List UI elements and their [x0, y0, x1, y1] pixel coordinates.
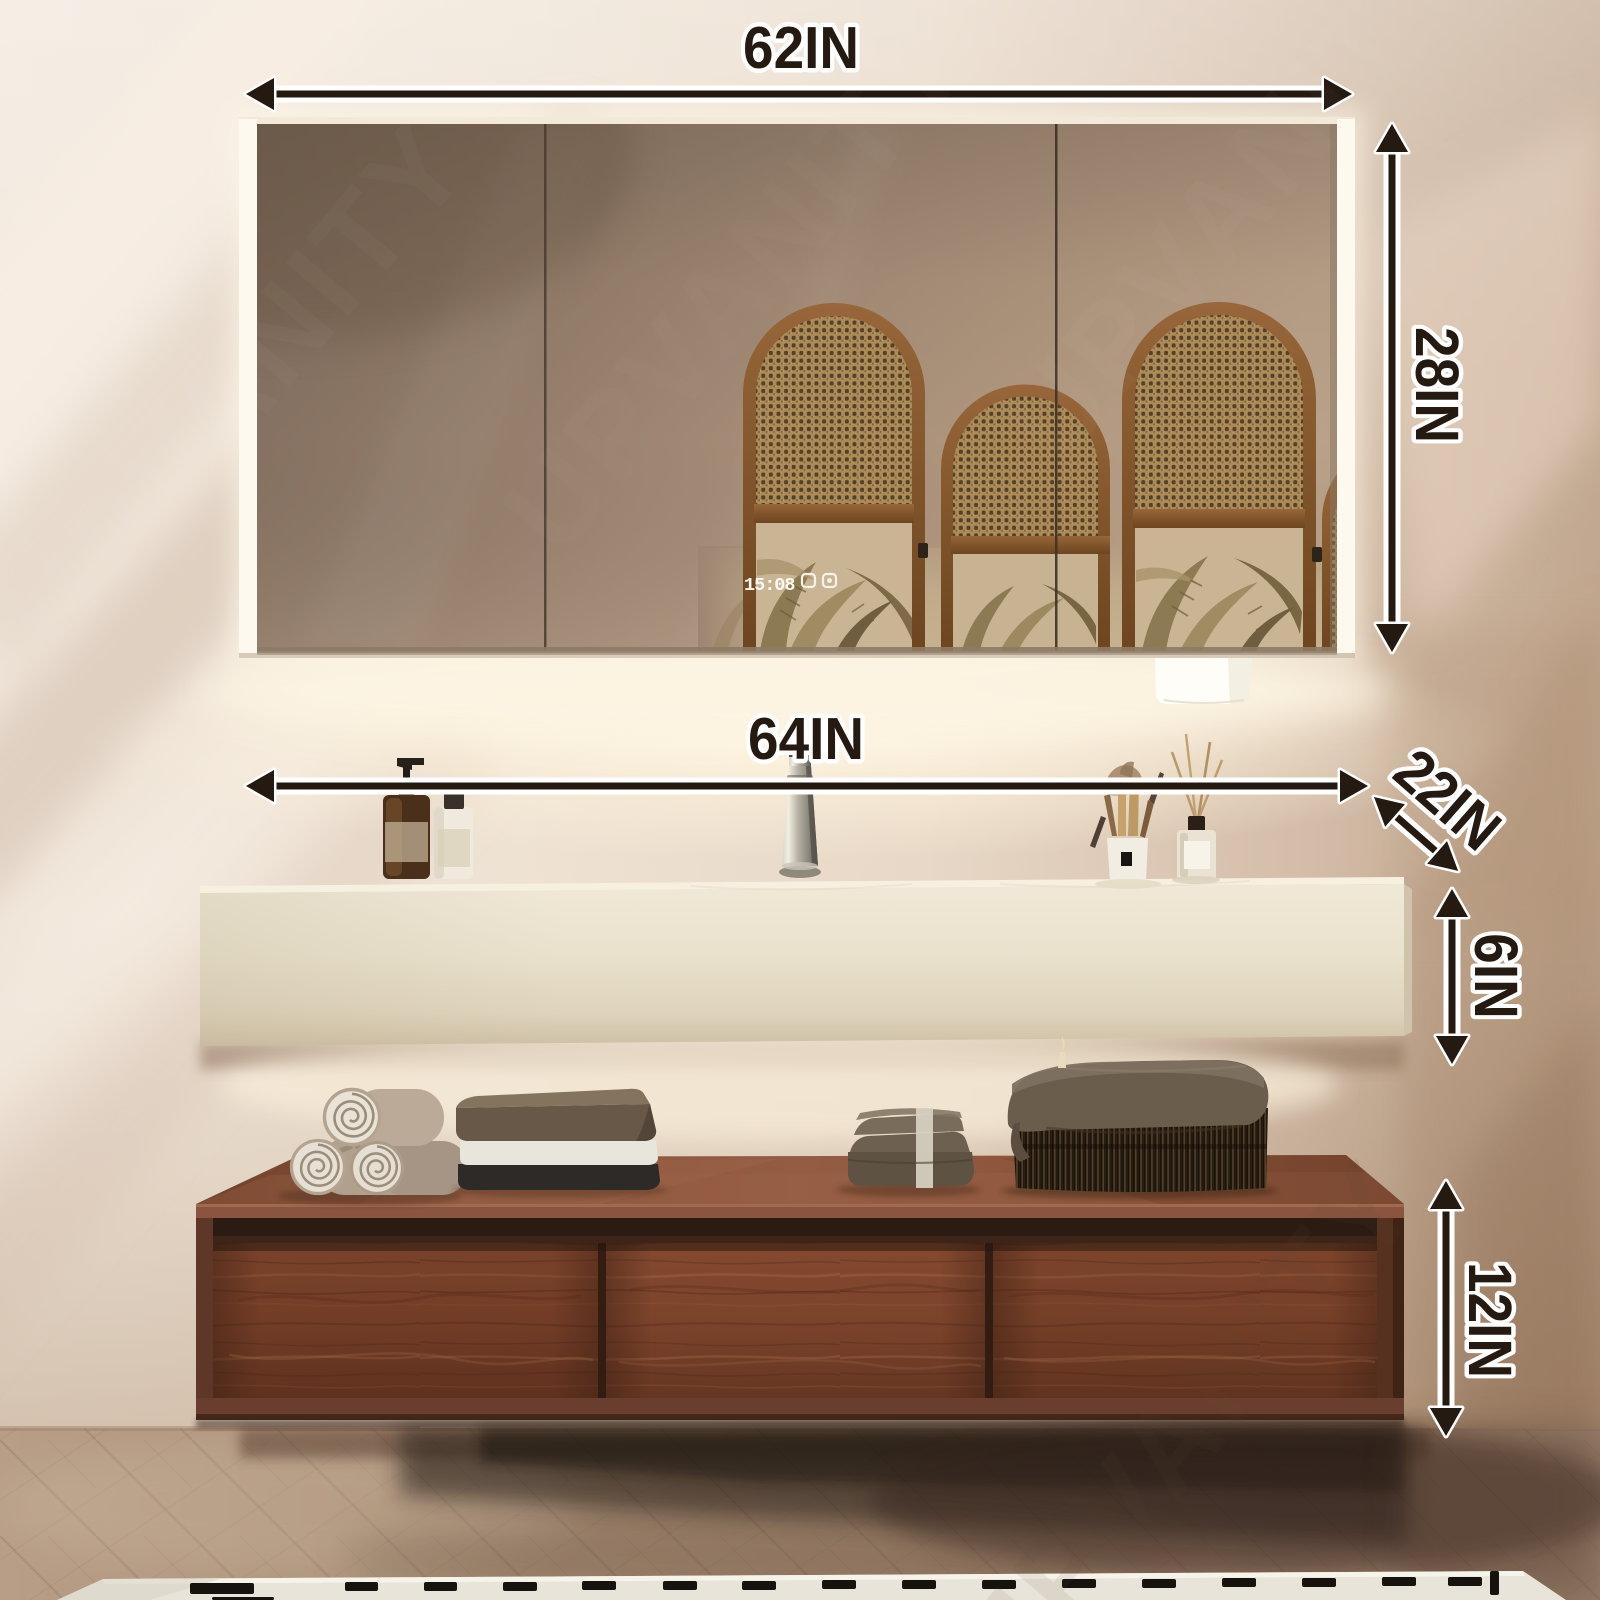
svg-text:6IN: 6IN	[1461, 933, 1529, 1018]
svg-text:15:08: 15:08	[744, 575, 795, 596]
svg-text:12IN: 12IN	[1455, 1262, 1523, 1378]
svg-text:28IN: 28IN	[1402, 327, 1470, 443]
svg-text:64IN: 64IN	[748, 706, 864, 772]
